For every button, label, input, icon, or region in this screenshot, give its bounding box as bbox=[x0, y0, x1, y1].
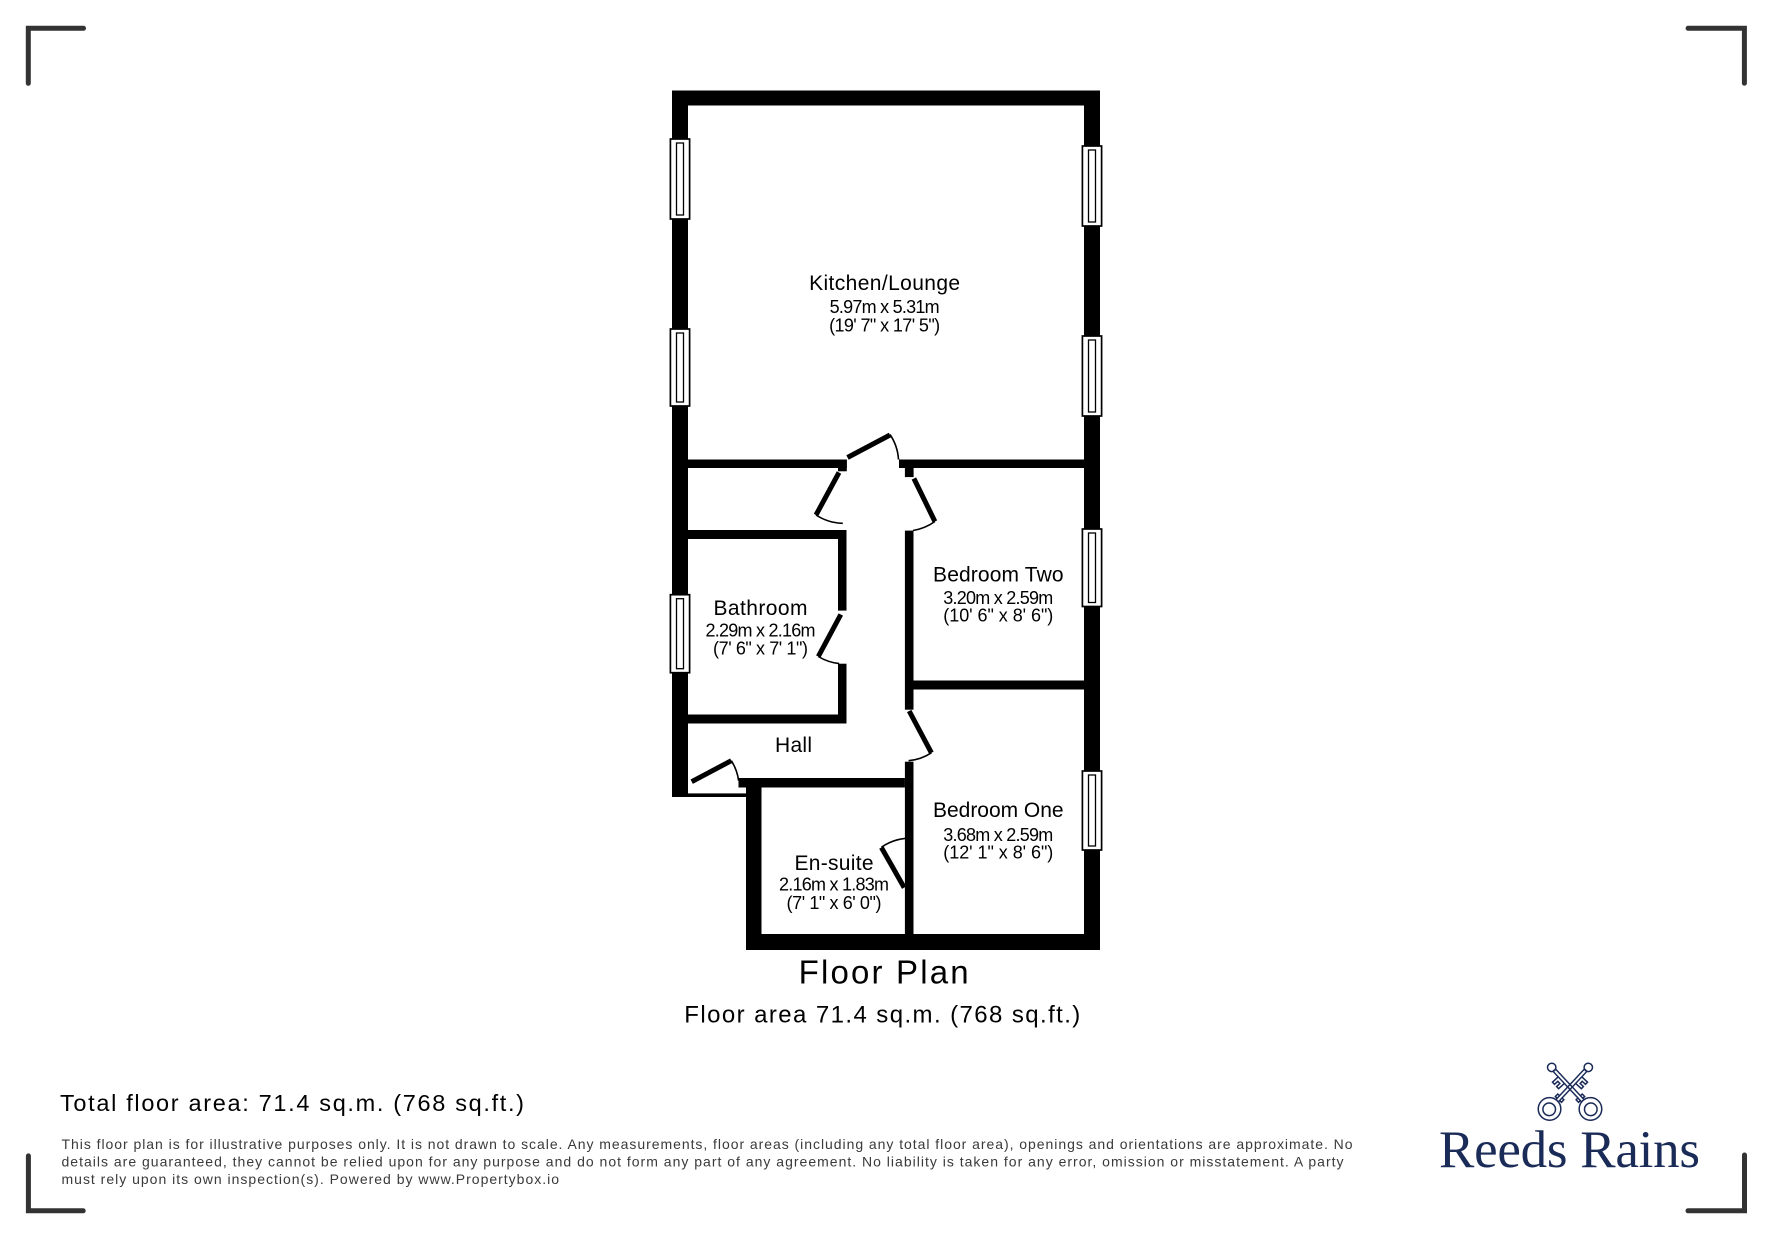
svg-text:(7' 1" x 6' 0"): (7' 1" x 6' 0") bbox=[787, 893, 882, 913]
svg-text:Kitchen/Lounge: Kitchen/Lounge bbox=[809, 272, 960, 295]
svg-text:En-suite: En-suite bbox=[795, 852, 874, 875]
svg-text:2.16m x 1.83m: 2.16m x 1.83m bbox=[779, 875, 889, 895]
svg-text:(7' 6" x 7' 1"): (7' 6" x 7' 1") bbox=[713, 639, 808, 659]
svg-text:Floor area 71.4 sq.m. (768 sq.: Floor area 71.4 sq.m. (768 sq.ft.) bbox=[684, 1002, 1080, 1029]
svg-text:Bathroom: Bathroom bbox=[714, 597, 808, 620]
svg-text:2.29m x 2.16m: 2.29m x 2.16m bbox=[706, 621, 816, 641]
svg-text:(10' 6" x 8' 6"): (10' 6" x 8' 6") bbox=[943, 606, 1053, 626]
svg-text:must rely upon its own inspect: must rely upon its own inspection(s). Po… bbox=[62, 1171, 560, 1187]
svg-text:(12' 1" x 8' 6"): (12' 1" x 8' 6") bbox=[943, 843, 1053, 863]
svg-text:Hall: Hall bbox=[775, 734, 812, 757]
svg-text:(19' 7" x 17' 5"): (19' 7" x 17' 5") bbox=[829, 315, 940, 335]
svg-text:Bedroom Two: Bedroom Two bbox=[933, 564, 1064, 587]
svg-text:Reeds Rains: Reeds Rains bbox=[1439, 1121, 1700, 1179]
svg-text:5.97m x 5.31m: 5.97m x 5.31m bbox=[830, 297, 940, 317]
svg-text:This floor plan is for illustr: This floor plan is for illustrative purp… bbox=[62, 1136, 1353, 1152]
svg-text:details are guaranteed, they c: details are guaranteed, they cannot be r… bbox=[62, 1154, 1344, 1170]
svg-text:Total floor area: 71.4 sq.m. (: Total floor area: 71.4 sq.m. (768 sq.ft.… bbox=[60, 1090, 524, 1116]
svg-text:Bedroom One: Bedroom One bbox=[933, 799, 1064, 822]
